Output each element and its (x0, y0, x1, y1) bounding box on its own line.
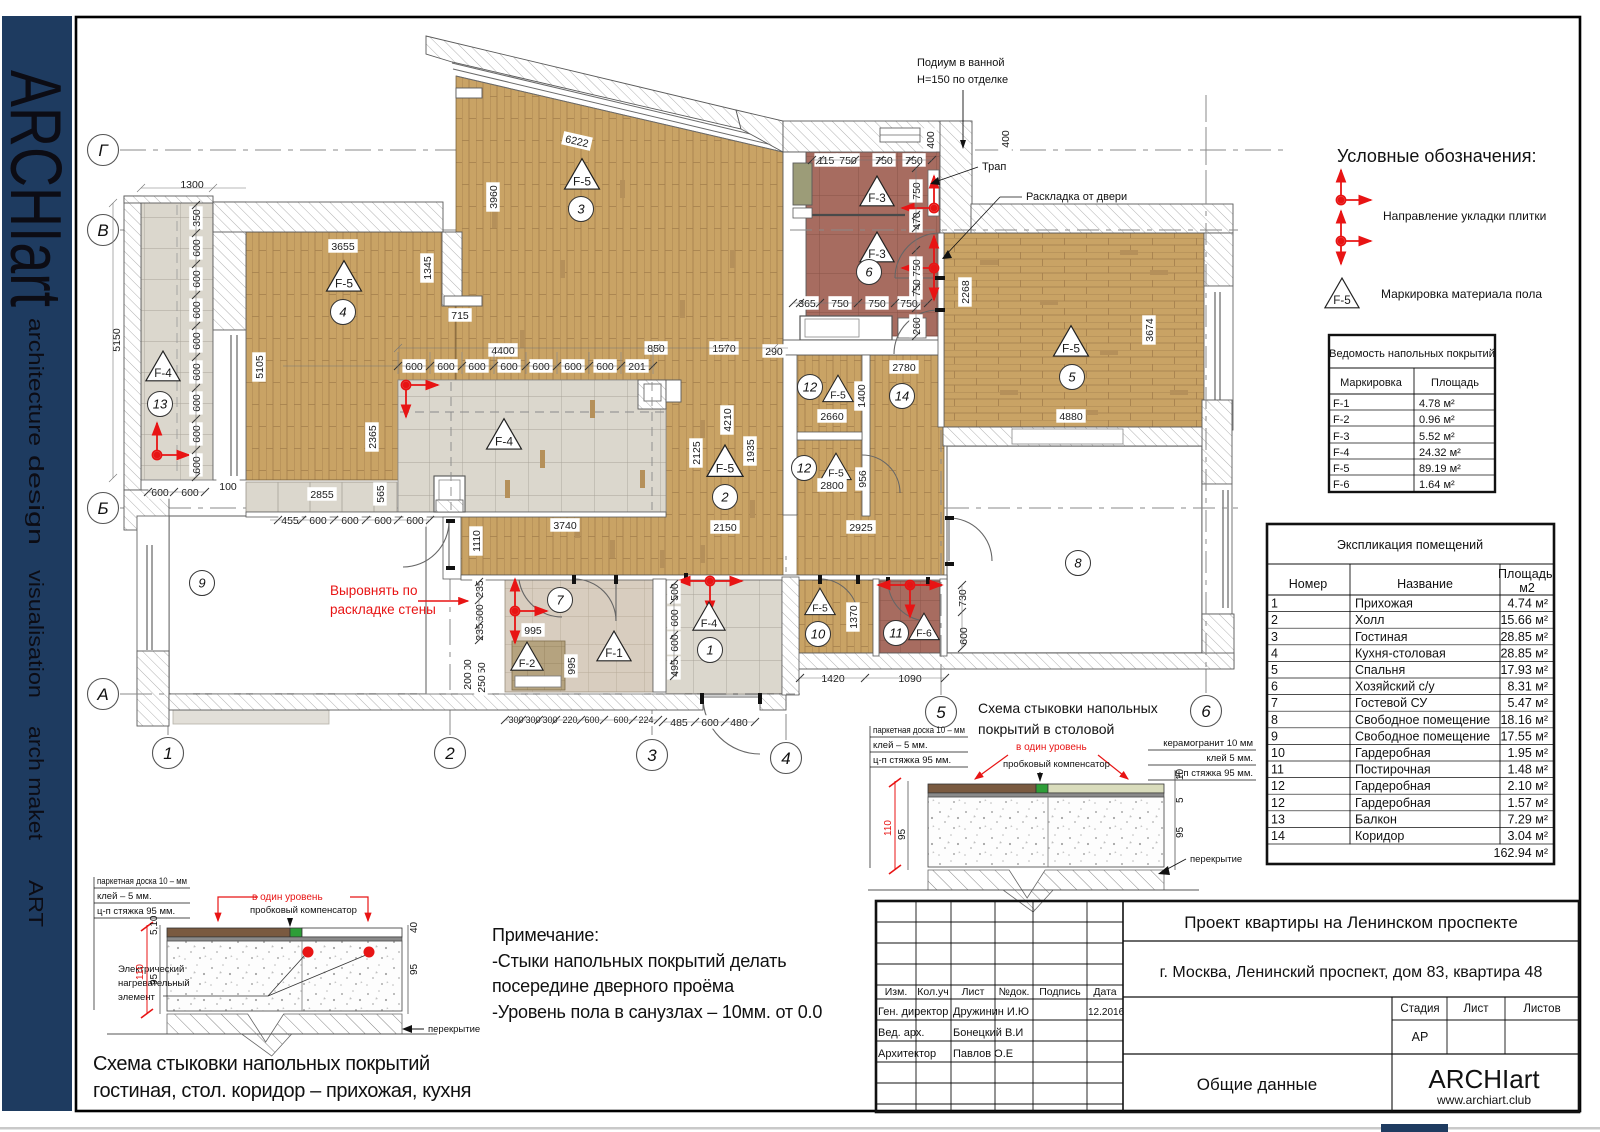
svg-text:F-5: F-5 (716, 462, 735, 476)
svg-text:F-5: F-5 (573, 174, 591, 188)
svg-text:ARCHIart: ARCHIart (1428, 1064, 1540, 1094)
svg-text:раскладке стены: раскладке стены (330, 602, 436, 617)
svg-text:design: design (24, 455, 46, 545)
svg-text:1400: 1400 (856, 384, 868, 408)
svg-text:Дата: Дата (1093, 986, 1116, 998)
svg-text:2268: 2268 (960, 280, 972, 304)
svg-text:3960: 3960 (488, 185, 500, 209)
svg-text:4.78 м²: 4.78 м² (1419, 398, 1455, 410)
svg-text:ц-п стяжка 95 мм.: ц-п стяжка 95 мм. (873, 755, 951, 766)
svg-text:1: 1 (163, 744, 172, 763)
svg-text:Спальня: Спальня (1355, 663, 1405, 677)
svg-text:3.04 м²: 3.04 м² (1507, 829, 1548, 843)
svg-text:600: 600 (532, 361, 550, 373)
svg-text:Схема стыковки напольных покры: Схема стыковки напольных покрытий (93, 1053, 430, 1075)
svg-text:F-5: F-5 (1062, 341, 1080, 355)
svg-text:Маркировка материала пола: Маркировка материала пола (1381, 287, 1542, 301)
svg-text:Кол.уч: Кол.уч (917, 986, 949, 998)
svg-text:5: 5 (1175, 797, 1186, 803)
svg-text:F-6: F-6 (916, 628, 932, 639)
svg-text:7: 7 (556, 593, 564, 608)
svg-text:Архитектор: Архитектор (878, 1048, 936, 1060)
svg-text:F-6: F-6 (1333, 479, 1350, 491)
svg-text:гостиная, стол. коридор – прих: гостиная, стол. коридор – прихожая, кухн… (93, 1080, 471, 1102)
svg-text:Изм.: Изм. (885, 986, 908, 998)
svg-text:F-5: F-5 (828, 468, 844, 479)
svg-text:Гардеробная: Гардеробная (1355, 779, 1431, 793)
svg-text:14: 14 (895, 389, 909, 404)
svg-text:12: 12 (1271, 796, 1285, 810)
svg-text:Подиум в ванной: Подиум в ванной (917, 57, 1005, 69)
svg-text:235: 235 (474, 623, 486, 641)
svg-text:arch maket: arch maket (24, 726, 46, 840)
svg-text:Экспликация помещений: Экспликация помещений (1337, 538, 1483, 552)
svg-text:600: 600 (701, 717, 719, 729)
svg-text:600: 600 (669, 634, 681, 652)
svg-text:Подпись: Подпись (1039, 986, 1081, 998)
svg-text:115: 115 (818, 155, 835, 167)
svg-text:12: 12 (797, 461, 812, 476)
svg-text:730: 730 (957, 589, 969, 607)
svg-text:4.74 м²: 4.74 м² (1507, 597, 1548, 611)
svg-text:architecture: architecture (24, 318, 46, 446)
svg-text:13: 13 (1271, 812, 1285, 826)
svg-text:ART: ART (24, 880, 46, 927)
svg-text:600: 600 (437, 361, 455, 373)
svg-text:956: 956 (857, 470, 869, 488)
svg-text:110: 110 (883, 820, 894, 836)
svg-text:Б: Б (97, 499, 108, 518)
svg-text:1.95 м²: 1.95 м² (1507, 746, 1548, 760)
svg-text:1: 1 (706, 643, 713, 658)
svg-text:2800: 2800 (820, 480, 844, 492)
svg-text:клей – 5 мм.: клей – 5 мм. (873, 740, 928, 751)
svg-text:7: 7 (1271, 696, 1278, 710)
svg-text:13: 13 (153, 397, 168, 412)
svg-text:600: 600 (958, 627, 970, 645)
svg-text:Выровнять по: Выровнять по (330, 583, 417, 598)
svg-text:1110: 1110 (471, 530, 483, 552)
svg-text:600: 600 (564, 361, 582, 373)
svg-text:F-5: F-5 (812, 603, 828, 614)
svg-text:1300: 1300 (180, 179, 204, 191)
svg-text:Маркировка: Маркировка (1340, 377, 1403, 389)
svg-text:5150: 5150 (111, 328, 123, 352)
svg-text:В: В (97, 221, 108, 240)
svg-text:11: 11 (1271, 763, 1284, 777)
svg-text:14: 14 (1271, 829, 1285, 843)
svg-text:Бонецкий В.И: Бонецкий В.И (953, 1027, 1023, 1039)
svg-text:9: 9 (1271, 729, 1278, 743)
svg-text:7.29 м²: 7.29 м² (1507, 812, 1548, 826)
svg-text:Название: Название (1397, 577, 1453, 591)
svg-text:-Уровень пола в санузлах – 10м: -Уровень пола в санузлах – 10мм. от 0.0 (492, 1002, 822, 1022)
svg-text:40: 40 (409, 921, 420, 933)
svg-text:ц-п стяжка 95 мм.: ц-п стяжка 95 мм. (97, 906, 175, 917)
svg-text:1345: 1345 (422, 256, 434, 280)
svg-text:11: 11 (889, 626, 903, 641)
svg-text:F-2: F-2 (1333, 414, 1350, 426)
svg-text:F-5: F-5 (335, 276, 353, 290)
svg-text:600: 600 (191, 456, 203, 474)
svg-text:2: 2 (1271, 613, 1278, 627)
svg-text:485: 485 (670, 717, 688, 729)
svg-text:Коридор: Коридор (1355, 829, 1404, 843)
svg-text:600: 600 (596, 361, 614, 373)
svg-text:600: 600 (406, 515, 424, 527)
svg-text:17.55 м²: 17.55 м² (1500, 729, 1548, 743)
svg-text:12.2016: 12.2016 (1088, 1007, 1125, 1018)
svg-text:995: 995 (524, 625, 542, 637)
svg-text:6: 6 (1201, 702, 1211, 721)
svg-text:3740: 3740 (553, 520, 577, 532)
svg-text:28.85 м²: 28.85 м² (1500, 646, 1548, 660)
svg-text:Свободное помещение: Свободное помещение (1355, 729, 1490, 743)
svg-text:15.66 м²: 15.66 м² (1500, 613, 1548, 627)
svg-text:600: 600 (151, 487, 169, 499)
svg-text:750: 750 (831, 298, 849, 310)
svg-text:10: 10 (1175, 768, 1186, 780)
svg-text:5: 5 (1271, 663, 1278, 677)
svg-text:ARCHIart: ARCHIart (0, 70, 75, 307)
svg-text:2: 2 (444, 744, 455, 763)
svg-text:600: 600 (669, 609, 681, 627)
svg-text:24.32 м²: 24.32 м² (1419, 447, 1461, 459)
svg-text:Раскладка от двери: Раскладка от двери (1026, 191, 1127, 203)
svg-text:1090: 1090 (898, 673, 922, 685)
svg-text:2365: 2365 (367, 425, 379, 449)
svg-text:600: 600 (191, 332, 203, 350)
svg-text:1570: 1570 (712, 343, 736, 355)
svg-text:4400: 4400 (491, 345, 515, 357)
svg-text:4210: 4210 (722, 408, 734, 432)
svg-text:пробковый компенсатор: пробковый компенсатор (250, 905, 357, 916)
svg-text:Общие данные: Общие данные (1197, 1075, 1317, 1094)
svg-text:пробковый компенсатор: пробковый компенсатор (1003, 759, 1110, 770)
svg-text:9: 9 (198, 576, 205, 591)
svg-text:Балкон: Балкон (1355, 812, 1397, 826)
svg-text:ц-п стяжка 95 мм.: ц-п стяжка 95 мм. (1175, 768, 1253, 779)
svg-text:2150: 2150 (713, 522, 737, 534)
svg-text:Примечание:: Примечание: (492, 925, 599, 945)
svg-text:850: 850 (647, 343, 665, 355)
svg-text:5.47 м²: 5.47 м² (1507, 696, 1548, 710)
svg-text:F-3: F-3 (1333, 431, 1350, 443)
svg-text:12: 12 (1271, 779, 1285, 793)
svg-text:Площадь: Площадь (1431, 377, 1479, 389)
svg-text:4: 4 (781, 749, 790, 768)
svg-text:2125: 2125 (691, 441, 703, 465)
svg-text:235: 235 (474, 580, 486, 598)
svg-text:500: 500 (669, 583, 681, 601)
svg-text:480: 480 (730, 717, 748, 729)
svg-text:89.19 м²: 89.19 м² (1419, 463, 1461, 475)
svg-text:400: 400 (925, 131, 937, 149)
svg-text:6: 6 (1271, 680, 1278, 694)
svg-text:Условные обозначения:: Условные обозначения: (1337, 146, 1536, 166)
svg-text:565: 565 (375, 485, 387, 503)
svg-text:www.archiart.club: www.archiart.club (1436, 1093, 1531, 1107)
svg-text:Схема стыковки напольных: Схема стыковки напольных (978, 700, 1158, 716)
svg-text:Гостиная: Гостиная (1355, 630, 1407, 644)
svg-text:600: 600 (474, 604, 486, 622)
svg-text:600: 600 (374, 515, 392, 527)
svg-text:4880: 4880 (1059, 411, 1083, 423)
svg-text:10: 10 (811, 627, 826, 642)
svg-text:201: 201 (628, 361, 646, 373)
svg-text:Гардеробная: Гардеробная (1355, 746, 1431, 760)
svg-text:5,10: 5,10 (149, 915, 160, 935)
svg-text:перекрытие: перекрытие (428, 1024, 480, 1035)
svg-text:м2: м2 (1519, 581, 1535, 595)
svg-text:995: 995 (566, 657, 578, 675)
svg-text:600: 600 (191, 239, 203, 257)
svg-text:3: 3 (577, 202, 585, 217)
svg-text:3: 3 (1271, 630, 1278, 644)
svg-text:керамогранит 10 мм: керамогранит 10 мм (1163, 738, 1253, 749)
svg-text:750: 750 (868, 298, 886, 310)
svg-text:F-4: F-4 (1333, 447, 1350, 459)
svg-text:455: 455 (281, 515, 299, 527)
svg-text:28.85 м²: 28.85 м² (1500, 630, 1548, 644)
svg-text:5: 5 (936, 703, 946, 722)
svg-text:Хозяйский с/у: Хозяйский с/у (1355, 680, 1435, 694)
svg-text:Вед. арх.: Вед. арх. (878, 1027, 924, 1039)
svg-text:Холл: Холл (1355, 613, 1384, 627)
svg-text:visualisation: visualisation (24, 570, 46, 698)
svg-text:8: 8 (1074, 556, 1082, 571)
svg-text:17.93 м²: 17.93 м² (1500, 663, 1548, 677)
svg-text:Направление укладки плитки: Направление укладки плитки (1383, 209, 1546, 223)
svg-text:750: 750 (911, 182, 923, 200)
svg-text:18.16 м²: 18.16 м² (1500, 713, 1548, 727)
svg-text:1935: 1935 (745, 439, 757, 463)
svg-text:495: 495 (669, 659, 681, 677)
svg-text:F-2: F-2 (519, 658, 536, 670)
svg-text:95: 95 (897, 828, 908, 840)
svg-text:2: 2 (720, 490, 729, 505)
svg-text:600: 600 (405, 361, 423, 373)
svg-text:1.48 м²: 1.48 м² (1507, 763, 1548, 777)
svg-text:95: 95 (1175, 826, 1186, 838)
svg-text:0.96 м²: 0.96 м² (1419, 414, 1455, 426)
svg-text:Свободное помещение: Свободное помещение (1355, 713, 1490, 727)
svg-text:Лист: Лист (1464, 1003, 1490, 1015)
svg-text:200: 200 (462, 672, 474, 690)
svg-text:4: 4 (1271, 646, 1278, 660)
svg-text:600: 600 (191, 363, 203, 381)
svg-text:95: 95 (149, 973, 160, 985)
svg-text:Постирочная: Постирочная (1355, 763, 1431, 777)
svg-text:Электрический: Электрический (118, 964, 184, 975)
svg-text:клей 5 мм.: клей 5 мм. (1206, 753, 1253, 764)
svg-text:600: 600 (341, 515, 359, 527)
svg-text:400: 400 (1000, 130, 1012, 148)
svg-text:паркетная доска 10 – мм: паркетная доска 10 – мм (873, 725, 965, 736)
svg-text:600: 600 (309, 515, 327, 527)
svg-text:F-4: F-4 (495, 434, 513, 448)
svg-text:2925: 2925 (849, 522, 873, 534)
svg-text:в один уровень: в один уровень (252, 892, 323, 903)
svg-text:1420: 1420 (821, 673, 845, 685)
svg-text:2780: 2780 (892, 362, 916, 374)
svg-text:паркетная доска 10 – мм: паркетная доска 10 – мм (97, 876, 187, 887)
svg-text:F-5: F-5 (1333, 463, 1350, 475)
svg-text:600: 600 (191, 425, 203, 443)
svg-text:6: 6 (865, 265, 873, 280)
svg-text:600: 600 (191, 394, 203, 412)
svg-text:4: 4 (339, 305, 346, 320)
svg-text:Площадь,: Площадь, (1498, 567, 1556, 581)
svg-text:1.57 м²: 1.57 м² (1507, 796, 1548, 810)
svg-text:Ведомость напольных покрытий: Ведомость напольных покрытий (1329, 348, 1495, 360)
svg-text:8: 8 (1271, 713, 1278, 727)
svg-text:Гардеробная: Гардеробная (1355, 796, 1431, 810)
svg-text:Дружинин И.Ю: Дружинин И.Ю (953, 1006, 1029, 1018)
svg-text:3674: 3674 (1144, 318, 1156, 342)
svg-text:в один уровень: в один уровень (1016, 742, 1087, 753)
svg-text:250: 250 (476, 675, 488, 693)
svg-text:5.52 м²: 5.52 м² (1419, 431, 1455, 443)
svg-text:2.10 м²: 2.10 м² (1507, 779, 1548, 793)
svg-text:F-5: F-5 (830, 390, 846, 401)
svg-text:А: А (96, 685, 108, 704)
svg-text:посередине дверного проёма: посередине дверного проёма (492, 976, 735, 996)
svg-text:365: 365 (798, 298, 816, 310)
svg-text:1: 1 (1271, 597, 1278, 611)
svg-text:F-1: F-1 (605, 647, 623, 660)
svg-text:перекрытие: перекрытие (1190, 854, 1242, 865)
svg-text:600: 600 (181, 487, 199, 499)
svg-text:F-3: F-3 (868, 192, 886, 205)
svg-text:F-4: F-4 (154, 367, 172, 380)
svg-text:2660: 2660 (820, 411, 844, 423)
svg-text:8.31 м²: 8.31 м² (1507, 680, 1548, 694)
svg-text:H=150 по отделке: H=150 по отделке (917, 74, 1008, 86)
svg-text:750: 750 (911, 259, 923, 277)
svg-text:Павлов О.Е: Павлов О.Е (953, 1048, 1013, 1060)
svg-text:F-4: F-4 (701, 618, 718, 630)
svg-text:Лист: Лист (962, 986, 985, 998)
svg-text:110: 110 (135, 964, 146, 980)
svg-text:715: 715 (451, 310, 469, 322)
svg-text:600: 600 (468, 361, 486, 373)
svg-text:3: 3 (647, 746, 657, 765)
svg-text:Кухня-столовая: Кухня-столовая (1355, 646, 1446, 660)
svg-text:F-1: F-1 (1333, 398, 1350, 410)
svg-text:Ген. директор: Ген. директор (878, 1006, 948, 1018)
svg-text:1.64 м²: 1.64 м² (1419, 479, 1455, 491)
svg-text:600: 600 (500, 361, 518, 373)
svg-text:элемент: элемент (118, 992, 156, 1003)
svg-text:покрытий в столовой: покрытий в столовой (978, 721, 1114, 737)
svg-text:АР: АР (1412, 1030, 1429, 1044)
svg-text:10: 10 (1271, 746, 1285, 760)
svg-text:260: 260 (911, 317, 923, 335)
svg-text:600: 600 (191, 301, 203, 319)
svg-text:5105: 5105 (254, 355, 266, 379)
svg-text:2855: 2855 (310, 489, 334, 501)
svg-text:г. Москва, Ленинский проспект,: г. Москва, Ленинский проспект, дом 83, к… (1160, 964, 1543, 981)
svg-text:Листов: Листов (1523, 1003, 1560, 1015)
svg-text:Стадия: Стадия (1400, 1003, 1439, 1015)
svg-text:1370: 1370 (848, 605, 860, 629)
svg-text:-Стыки напольных покрытий дела: -Стыки напольных покрытий делать (492, 951, 786, 971)
svg-text:750: 750 (911, 279, 923, 297)
svg-text:Проект квартиры на Ленинском п: Проект квартиры на Ленинском проспекте (1184, 913, 1518, 932)
svg-text:3655: 3655 (331, 241, 355, 253)
svg-text:F-5: F-5 (1333, 294, 1351, 307)
svg-text:Трап: Трап (982, 161, 1006, 173)
svg-text:162.94 м²: 162.94 м² (1494, 846, 1548, 860)
svg-text:5: 5 (1068, 370, 1076, 385)
svg-text:12: 12 (803, 380, 818, 395)
svg-text:95: 95 (409, 963, 420, 975)
svg-text:350: 350 (191, 209, 203, 227)
svg-text:клей – 5 мм.: клей – 5 мм. (97, 891, 152, 902)
svg-text:600: 600 (191, 270, 203, 288)
svg-text:№док.: №док. (999, 986, 1030, 998)
svg-text:Гостевой СУ: Гостевой СУ (1355, 696, 1427, 710)
svg-text:100: 100 (219, 481, 237, 493)
svg-text:Прихожая: Прихожая (1355, 597, 1413, 611)
svg-text:Номер: Номер (1289, 577, 1328, 591)
